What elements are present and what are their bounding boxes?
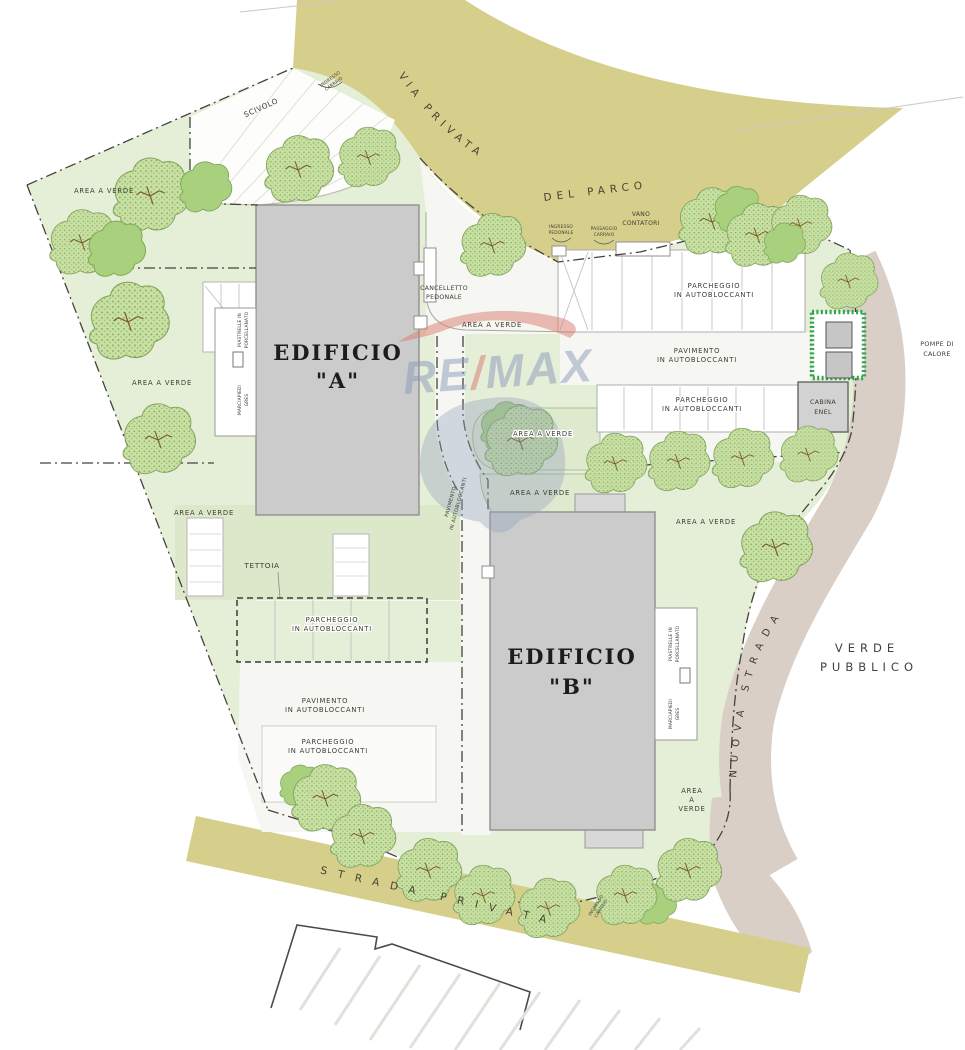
- pavimento-label: PAVIMENTO: [674, 347, 720, 355]
- area-verde-label: AREA A VERDE: [462, 321, 522, 329]
- parcheggio-label: IN AUTOBLOCCANTI: [288, 747, 368, 755]
- building-b-annex: [585, 830, 643, 848]
- building-a-annex: [414, 316, 427, 329]
- pavimento-label: IN AUTOBLOCCANTI: [285, 706, 365, 714]
- cabina-enel-label: CABINA: [810, 398, 836, 406]
- svg-text:GRES: GRES: [244, 394, 250, 407]
- verde-pubblico-label: PUBBLICO: [820, 660, 918, 674]
- building-b-annex: [575, 494, 625, 512]
- parcheggio-label: PARCHEGGIO: [676, 396, 729, 404]
- verde-pubblico-label: VERDE: [835, 641, 899, 655]
- entrance-box: [552, 246, 566, 256]
- building-a-label: EDIFICIO: [273, 340, 403, 365]
- building-b-label: EDIFICIO: [507, 644, 637, 669]
- cancelletto-label: CANCELLETTO: [420, 285, 468, 292]
- area-verde-label: A: [689, 796, 694, 804]
- building-b-entrance: [680, 668, 690, 683]
- parcheggio-label: IN AUTOBLOCCANTI: [292, 625, 372, 633]
- area-verde-label: AREA A VERDE: [510, 489, 570, 497]
- svg-text:PIASTRELLE IN: PIASTRELLE IN: [237, 313, 243, 347]
- building-a-label: "A": [316, 368, 360, 393]
- passaggio-carraio-label: CARRAIO: [594, 232, 615, 238]
- svg-text:PORCELLANATO: PORCELLANATO: [675, 625, 681, 662]
- passaggio-carraio-label: PASSAGGIO: [591, 226, 618, 232]
- parcheggio-label: PARCHEGGIO: [688, 282, 741, 290]
- area-verde-label: AREA: [681, 787, 703, 795]
- parcheggio-label: PARCHEGGIO: [306, 616, 359, 624]
- heat-pump-box: [826, 352, 852, 378]
- pavimento-label: IN AUTOBLOCCANTI: [657, 356, 737, 364]
- cabina-enel-box: [798, 382, 848, 432]
- svg-text:PIASTRELLE IN: PIASTRELLE IN: [668, 627, 674, 661]
- vano-contatori-label: VANO: [632, 211, 650, 218]
- tettoia-label: TETTOIA: [243, 561, 279, 570]
- site-plan-drawing: RE/MAX VIA PRIVATA DEL PARCO NUOVA STRAD…: [0, 0, 965, 1050]
- ingresso-pedonale-label: PEDONALE: [549, 230, 574, 236]
- ingresso-pedonale-label: INGRESSO: [549, 224, 573, 230]
- area-verde-label: AREA A VERDE: [74, 187, 134, 195]
- area-verde-label: VERDE: [678, 805, 705, 813]
- pompe-calore-label: POMPE DI: [920, 340, 954, 348]
- building-a-entrance: [233, 352, 243, 367]
- parcheggio-label: IN AUTOBLOCCANTI: [662, 405, 742, 413]
- svg-text:GRES: GRES: [675, 708, 681, 721]
- cabina-enel-label: ENEL: [814, 408, 832, 416]
- pompe-di-calore-unit: [812, 312, 864, 378]
- area-verde-label: AREA A VERDE: [174, 509, 234, 517]
- parcheggio-label: PARCHEGGIO: [302, 738, 355, 746]
- cancelletto-label: PEDONALE: [426, 294, 462, 301]
- svg-text:MARCIAPIEDI: MARCIAPIEDI: [237, 385, 243, 415]
- pompe-calore-label: CALORE: [923, 350, 950, 358]
- building-b-annex: [482, 566, 494, 578]
- parcheggio-label: IN AUTOBLOCCANTI: [674, 291, 754, 299]
- area-verde-label: AREA A VERDE: [676, 518, 736, 526]
- area-verde-label: AREA A VERDE: [132, 379, 192, 387]
- heat-pump-box: [826, 322, 852, 348]
- pavimento-label: PAVIMENTO: [302, 697, 348, 705]
- svg-text:PORCELLANATO: PORCELLANATO: [244, 311, 250, 348]
- svg-text:MARCIAPIEDI: MARCIAPIEDI: [668, 699, 674, 729]
- vano-contatori-label: CONTATORI: [622, 220, 659, 227]
- site-plan-canvas: RE/MAX VIA PRIVATA DEL PARCO NUOVA STRAD…: [0, 0, 965, 1050]
- area-verde-label: AREA A VERDE: [513, 430, 573, 438]
- building-b-label: "B": [549, 674, 595, 699]
